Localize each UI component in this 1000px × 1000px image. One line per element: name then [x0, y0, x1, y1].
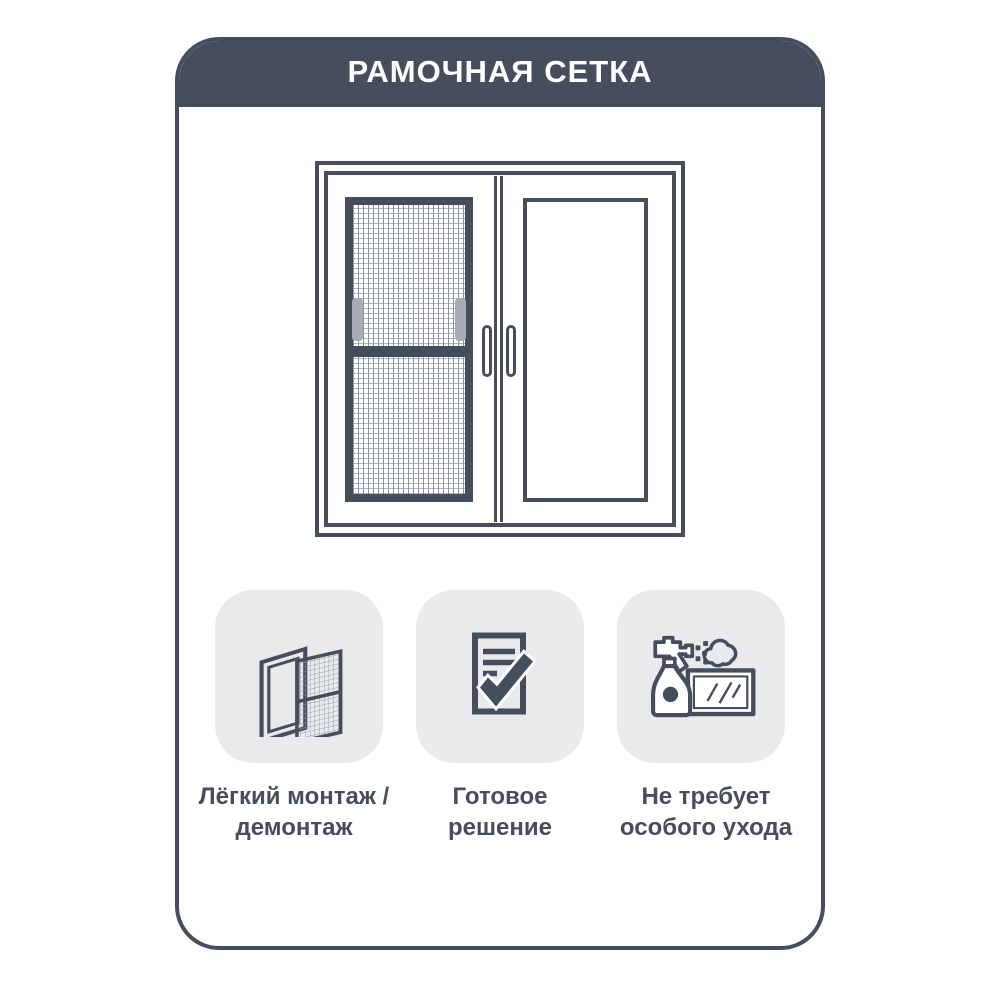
feature-tile-easy-mount [215, 590, 383, 763]
spray-bottle-glass-icon [640, 622, 762, 732]
caption-line: Готовое [397, 781, 603, 812]
window-mullion-left-line [494, 176, 497, 522]
feature-tiles-row [179, 590, 821, 763]
card-header: РАМОЧНАЯ СЕТКА [175, 37, 825, 107]
caption-line: Не требует [603, 781, 809, 812]
product-card: РАМОЧНАЯ СЕТКА [175, 37, 825, 950]
mesh-crossbar [353, 346, 465, 357]
feature-captions-row: Лёгкий монтаж / демонтаж Готовое решение… [179, 781, 821, 843]
page-title: РАМОЧНАЯ СЕТКА [347, 54, 652, 90]
window-illustration [315, 161, 685, 537]
window-mullion-right-line [500, 176, 503, 522]
right-sash-handle [506, 325, 516, 377]
frame-and-mesh-panel-icon [247, 617, 351, 737]
mesh-pull-tab-right [455, 298, 466, 341]
caption-line: решение [397, 812, 603, 843]
feature-tile-ready-solution [416, 590, 584, 763]
document-checkmark-icon [450, 621, 550, 733]
feature-caption-easy-mount: Лёгкий монтаж / демонтаж [191, 781, 397, 843]
mesh-pull-tab-left [352, 298, 363, 341]
mesh-screen-frame [345, 197, 473, 502]
caption-line: особого ухода [603, 812, 809, 843]
feature-caption-easy-care: Не требует особого ухода [603, 781, 809, 843]
right-pane-glass [523, 198, 648, 502]
feature-tile-easy-care [617, 590, 785, 763]
left-sash-handle [482, 325, 492, 377]
caption-line: Лёгкий монтаж / [191, 781, 397, 812]
infographic-page: РАМОЧНАЯ СЕТКА [0, 0, 1000, 1000]
caption-line: демонтаж [191, 812, 397, 843]
feature-caption-ready-solution: Готовое решение [397, 781, 603, 843]
